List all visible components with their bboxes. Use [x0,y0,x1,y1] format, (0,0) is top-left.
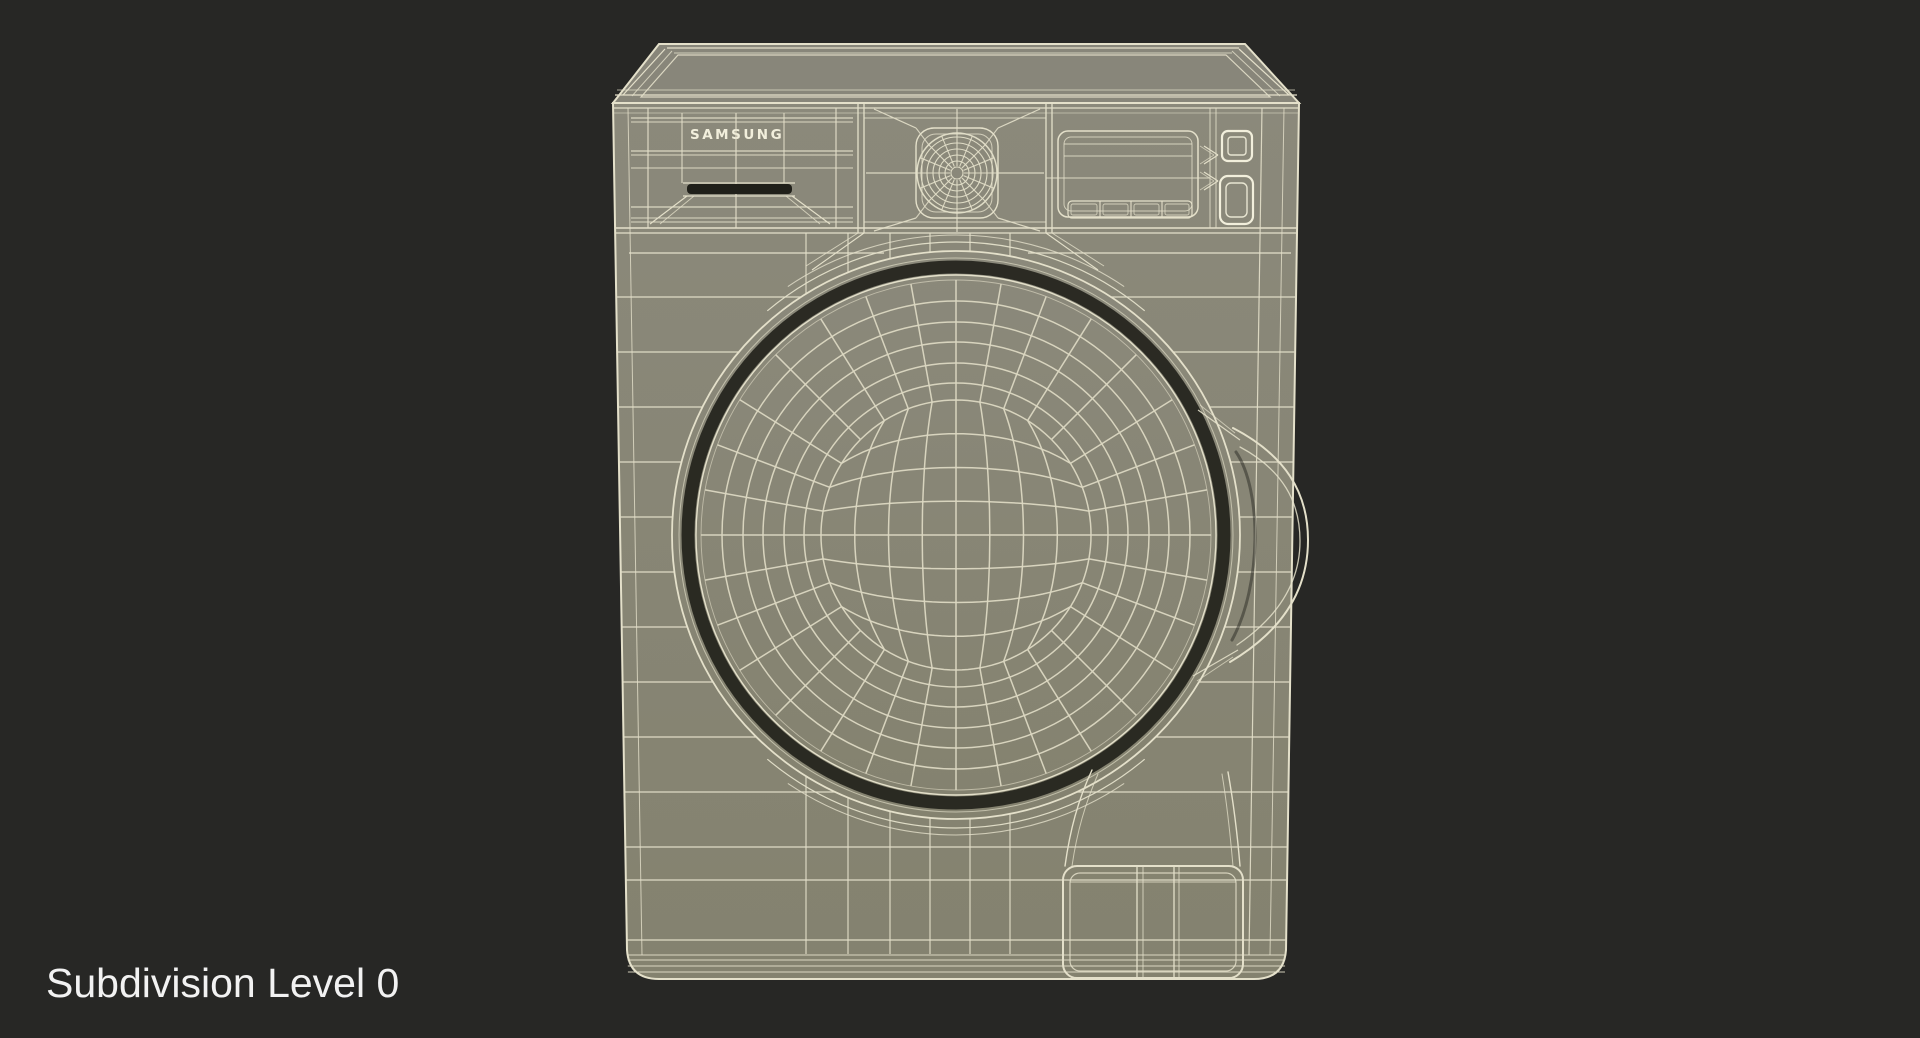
samsung-logo: SAMSUNG [690,127,784,143]
render-viewport: SAMSUNG Subdivision Level 0 [0,0,1920,1038]
door-mesh [701,280,1211,790]
washing-machine-wireframe-render: SAMSUNG [0,0,1920,1038]
subdivision-level-caption: Subdivision Level 0 [46,960,399,1007]
